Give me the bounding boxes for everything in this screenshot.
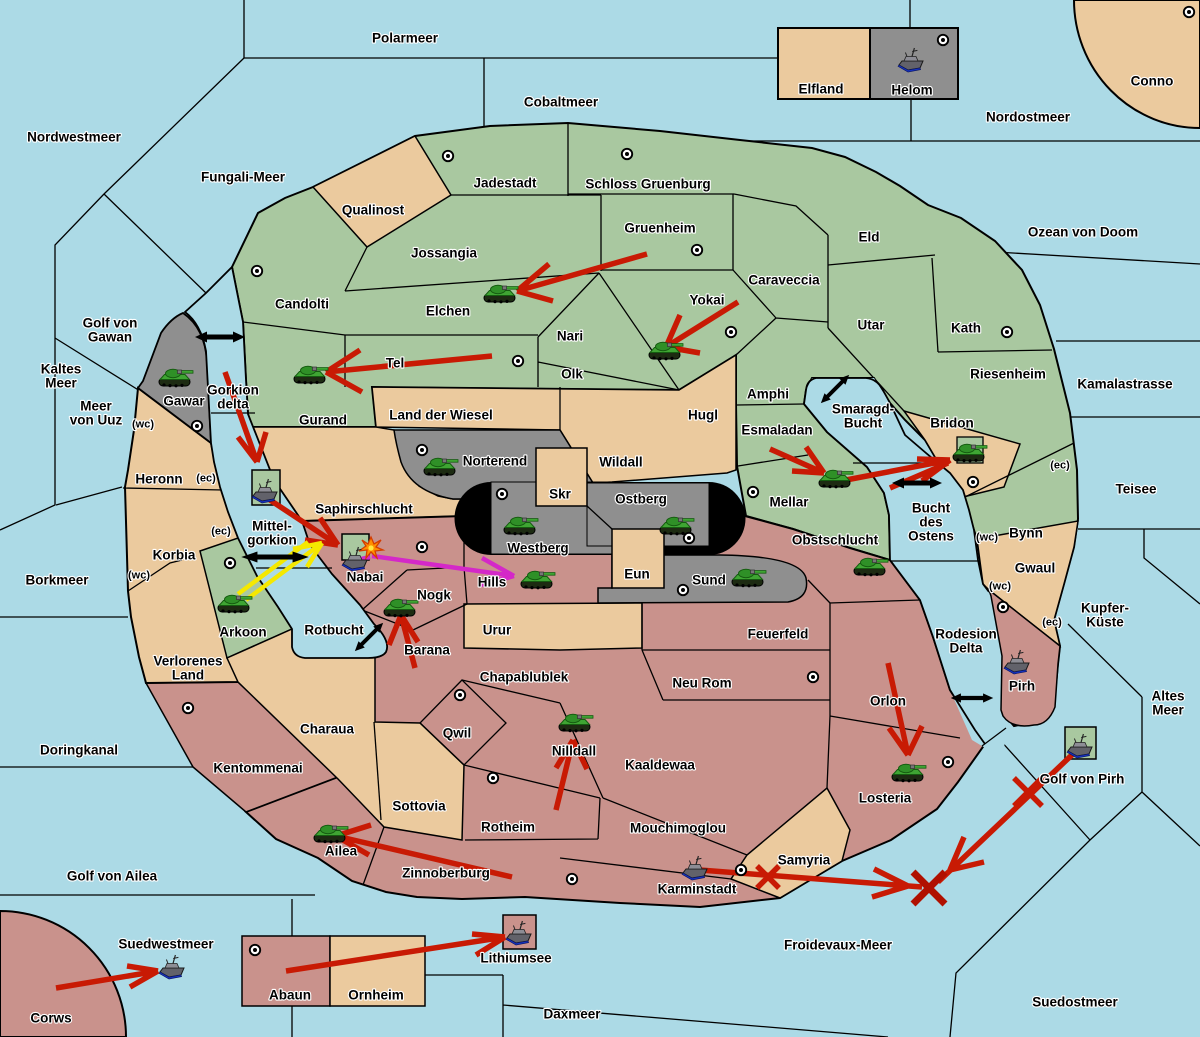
svg-text:Bucht: Bucht bbox=[912, 501, 951, 516]
svg-text:Hills: Hills bbox=[478, 575, 507, 590]
svg-text:Bynn: Bynn bbox=[1009, 526, 1043, 541]
svg-text:Westberg: Westberg bbox=[507, 541, 568, 556]
svg-text:Golf von Pirh: Golf von Pirh bbox=[1040, 772, 1125, 787]
svg-text:(wc): (wc) bbox=[989, 581, 1011, 593]
svg-text:Urur: Urur bbox=[483, 623, 512, 638]
svg-text:Kentommenai: Kentommenai bbox=[213, 761, 302, 776]
svg-text:Heronn: Heronn bbox=[135, 472, 182, 487]
svg-text:des: des bbox=[919, 515, 942, 530]
svg-text:Suedwestmeer: Suedwestmeer bbox=[118, 937, 214, 952]
svg-text:Zinnoberburg: Zinnoberburg bbox=[402, 866, 490, 881]
svg-text:Arkoon: Arkoon bbox=[219, 625, 266, 640]
svg-text:Fungali-Meer: Fungali-Meer bbox=[201, 170, 286, 185]
svg-text:Norterend: Norterend bbox=[463, 454, 528, 469]
svg-text:Korbia: Korbia bbox=[153, 548, 196, 563]
svg-text:Daxmeer: Daxmeer bbox=[543, 1007, 601, 1022]
svg-text:Mittel-: Mittel- bbox=[252, 519, 292, 534]
svg-text:Utar: Utar bbox=[857, 318, 885, 333]
svg-text:Doringkanal: Doringkanal bbox=[40, 743, 118, 758]
svg-text:Qualinost: Qualinost bbox=[342, 203, 405, 218]
svg-text:Sottovia: Sottovia bbox=[392, 799, 446, 814]
svg-text:Obstschlucht: Obstschlucht bbox=[792, 533, 879, 548]
svg-text:Küste: Küste bbox=[1086, 615, 1124, 630]
svg-text:Caraveccia: Caraveccia bbox=[748, 273, 820, 288]
svg-text:Conno: Conno bbox=[1131, 74, 1174, 89]
svg-text:Kaltes: Kaltes bbox=[41, 362, 82, 377]
svg-text:Rotbucht: Rotbucht bbox=[304, 623, 364, 638]
svg-text:Wildall: Wildall bbox=[599, 455, 642, 470]
svg-text:Eld: Eld bbox=[858, 230, 879, 245]
svg-text:Olk: Olk bbox=[561, 367, 583, 382]
svg-text:Mellar: Mellar bbox=[769, 495, 809, 510]
svg-text:Mouchimoglou: Mouchimoglou bbox=[630, 821, 726, 836]
svg-text:Abaun: Abaun bbox=[269, 988, 311, 1003]
svg-text:Gawan: Gawan bbox=[88, 330, 132, 345]
svg-text:Gurand: Gurand bbox=[299, 413, 347, 428]
svg-text:Karminstadt: Karminstadt bbox=[658, 882, 737, 897]
svg-text:Ostberg: Ostberg bbox=[615, 492, 667, 507]
svg-text:Cobaltmeer: Cobaltmeer bbox=[524, 95, 599, 110]
svg-text:Pirh: Pirh bbox=[1009, 679, 1035, 694]
svg-text:Teisee: Teisee bbox=[1115, 482, 1157, 497]
svg-text:Skr: Skr bbox=[549, 487, 572, 502]
svg-text:Jossangia: Jossangia bbox=[411, 246, 478, 261]
svg-text:Gwaul: Gwaul bbox=[1015, 561, 1056, 576]
svg-text:Polarmeer: Polarmeer bbox=[372, 31, 439, 46]
svg-text:(ec): (ec) bbox=[1042, 617, 1062, 629]
svg-text:Kamalastrasse: Kamalastrasse bbox=[1077, 377, 1173, 392]
svg-text:Delta: Delta bbox=[949, 641, 983, 656]
svg-text:Ostens: Ostens bbox=[908, 529, 954, 544]
svg-text:Meer: Meer bbox=[1152, 703, 1184, 718]
svg-text:(wc): (wc) bbox=[128, 570, 150, 582]
svg-text:Ornheim: Ornheim bbox=[348, 988, 404, 1003]
svg-text:Nordwestmeer: Nordwestmeer bbox=[27, 130, 122, 145]
svg-text:Bridon: Bridon bbox=[930, 416, 974, 431]
svg-text:gorkion: gorkion bbox=[247, 533, 297, 548]
svg-text:Nogk: Nogk bbox=[417, 588, 451, 603]
svg-text:Verlorenes: Verlorenes bbox=[153, 654, 222, 669]
svg-text:Ailea: Ailea bbox=[325, 844, 358, 859]
svg-text:Golf von Ailea: Golf von Ailea bbox=[67, 869, 158, 884]
svg-text:Chapablublek: Chapablublek bbox=[480, 670, 569, 685]
svg-text:Eun: Eun bbox=[624, 567, 650, 582]
svg-text:Land: Land bbox=[172, 668, 204, 683]
svg-text:Rodesion: Rodesion bbox=[935, 627, 997, 642]
svg-text:Candolti: Candolti bbox=[275, 297, 329, 312]
svg-text:Meer: Meer bbox=[80, 399, 112, 414]
svg-text:Elchen: Elchen bbox=[426, 304, 470, 319]
svg-text:Nilldall: Nilldall bbox=[552, 744, 596, 759]
svg-text:Neu Rom: Neu Rom bbox=[672, 676, 731, 691]
svg-text:Qwil: Qwil bbox=[443, 726, 472, 741]
svg-text:Losteria: Losteria bbox=[859, 791, 912, 806]
svg-text:von Uuz: von Uuz bbox=[70, 413, 123, 428]
svg-text:Kath: Kath bbox=[951, 321, 981, 336]
svg-text:Rotheim: Rotheim bbox=[481, 820, 535, 835]
svg-text:Bucht: Bucht bbox=[844, 416, 883, 431]
svg-text:Elfland: Elfland bbox=[798, 82, 843, 97]
svg-text:Suedostmeer: Suedostmeer bbox=[1032, 995, 1118, 1010]
svg-text:Nabai: Nabai bbox=[347, 570, 384, 585]
svg-text:Samyria: Samyria bbox=[778, 853, 831, 868]
svg-text:Altes: Altes bbox=[1151, 689, 1184, 704]
svg-text:Land der Wiesel: Land der Wiesel bbox=[389, 408, 492, 423]
svg-text:Amphi: Amphi bbox=[747, 387, 789, 402]
svg-text:Esmaladan: Esmaladan bbox=[741, 423, 812, 438]
svg-text:Corws: Corws bbox=[30, 1011, 71, 1026]
svg-text:Saphirschlucht: Saphirschlucht bbox=[315, 502, 413, 517]
svg-text:Feuerfeld: Feuerfeld bbox=[748, 627, 809, 642]
svg-text:Smaragd-: Smaragd- bbox=[832, 402, 894, 417]
svg-text:Kupfer-: Kupfer- bbox=[1081, 601, 1129, 616]
svg-text:Gawar: Gawar bbox=[163, 394, 205, 409]
svg-text:Tel: Tel bbox=[386, 356, 405, 371]
svg-text:Orlon: Orlon bbox=[870, 694, 906, 709]
svg-text:Riesenheim: Riesenheim bbox=[970, 367, 1046, 382]
svg-text:Ozean von Doom: Ozean von Doom bbox=[1028, 225, 1138, 240]
svg-text:Schloss Gruenburg: Schloss Gruenburg bbox=[585, 177, 710, 192]
svg-text:Jadestadt: Jadestadt bbox=[473, 176, 537, 191]
svg-text:Charaua: Charaua bbox=[300, 722, 355, 737]
svg-text:(ec): (ec) bbox=[1050, 460, 1070, 472]
svg-text:(ec): (ec) bbox=[196, 473, 216, 485]
svg-text:Nari: Nari bbox=[557, 329, 583, 344]
svg-text:Meer: Meer bbox=[45, 376, 77, 391]
svg-text:Hugl: Hugl bbox=[688, 408, 718, 423]
svg-text:(wc): (wc) bbox=[132, 419, 154, 431]
svg-text:Gruenheim: Gruenheim bbox=[624, 221, 695, 236]
svg-text:Nordostmeer: Nordostmeer bbox=[986, 110, 1071, 125]
svg-text:(wc): (wc) bbox=[976, 532, 998, 544]
svg-text:Yokai: Yokai bbox=[689, 293, 724, 308]
svg-text:Borkmeer: Borkmeer bbox=[25, 573, 89, 588]
svg-text:(ec): (ec) bbox=[211, 526, 231, 538]
svg-text:Lithiumsee: Lithiumsee bbox=[480, 951, 552, 966]
svg-text:Kaaldewaa: Kaaldewaa bbox=[625, 758, 695, 773]
svg-text:Froidevaux-Meer: Froidevaux-Meer bbox=[784, 938, 893, 953]
svg-text:Golf von: Golf von bbox=[83, 316, 138, 331]
svg-text:Barana: Barana bbox=[404, 643, 450, 658]
svg-text:Helom: Helom bbox=[891, 83, 932, 98]
svg-text:Gorkion: Gorkion bbox=[207, 383, 259, 398]
svg-text:delta: delta bbox=[217, 397, 249, 412]
svg-text:Sund: Sund bbox=[692, 573, 726, 588]
